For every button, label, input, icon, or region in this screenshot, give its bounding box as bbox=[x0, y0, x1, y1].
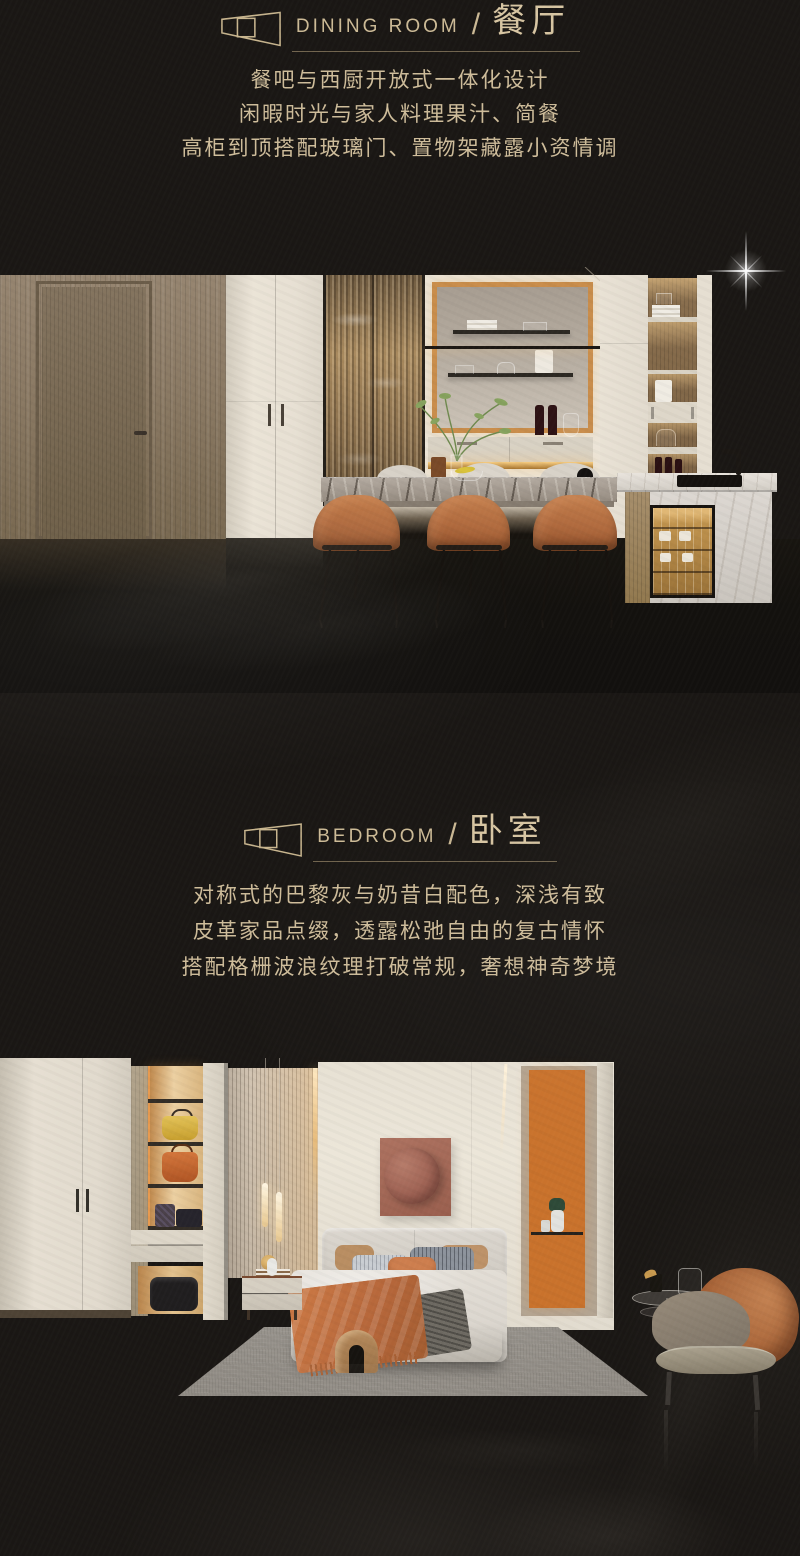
fluted-panel bbox=[228, 1068, 318, 1278]
duffel-bag bbox=[150, 1277, 198, 1311]
folded-clothes bbox=[176, 1209, 202, 1227]
canister bbox=[682, 553, 693, 562]
shelf-niche-glow bbox=[648, 322, 697, 370]
dining-description: 餐吧与西厨开放式一体化设计 闲暇时光与家人料理果汁、简餐 高柜到顶搭配玻璃门、置… bbox=[0, 64, 800, 166]
promo-page: DINING ROOM / 餐厅 餐吧与西厨开放式一体化设计 闲暇时光与家人料理… bbox=[0, 0, 800, 1556]
wine-glasses bbox=[656, 429, 676, 446]
floor-reflection bbox=[664, 1410, 668, 1474]
shelf-divider bbox=[648, 370, 697, 374]
nightstand-leg bbox=[247, 1310, 250, 1320]
purse bbox=[155, 1204, 175, 1227]
glass-shelf bbox=[531, 1232, 583, 1235]
led-light-slit bbox=[313, 1068, 317, 1198]
shelf-drawer-band bbox=[648, 402, 697, 423]
cream-panel bbox=[597, 1063, 613, 1318]
wine-bottle bbox=[675, 459, 682, 474]
chair-legs bbox=[300, 550, 630, 628]
bedroom-description: 对称式的巴黎灰与奶昔白配色，深浅有致 皮革家品点缀，透露松弛自由的复古情怀 搭配… bbox=[0, 878, 800, 986]
armchair-leg bbox=[665, 1372, 672, 1405]
canister bbox=[679, 531, 691, 541]
floor-reflection bbox=[0, 539, 226, 591]
dining-description-line: 餐吧与西厨开放式一体化设计 bbox=[0, 64, 800, 98]
handbag-orange bbox=[162, 1152, 198, 1182]
bedroom-description-line: 皮革家品点缀，透露松弛自由的复古情怀 bbox=[0, 914, 800, 950]
bedroom-description-line: 对称式的巴黎灰与奶昔白配色，深浅有致 bbox=[0, 878, 800, 914]
perspective-frame-logo-icon bbox=[220, 9, 282, 49]
floor-reflection bbox=[754, 1412, 758, 1470]
bedroom-photo bbox=[0, 1058, 800, 1418]
wardrobe bbox=[0, 1058, 131, 1318]
door-handle bbox=[134, 431, 147, 435]
dining-header-en: DINING ROOM bbox=[296, 16, 460, 38]
cabinet-seam bbox=[600, 343, 648, 344]
dining-header: DINING ROOM / 餐厅 bbox=[0, 6, 800, 52]
dining-header-zh: 餐厅 bbox=[492, 0, 570, 42]
niche-shelf bbox=[148, 1099, 203, 1103]
floor-reflection bbox=[340, 1420, 700, 1480]
nightstand-leg bbox=[294, 1310, 297, 1320]
wall-art-circle bbox=[384, 1148, 440, 1204]
glassware bbox=[656, 293, 672, 304]
wall-seam bbox=[471, 1062, 472, 1232]
pendant-light bbox=[262, 1183, 268, 1227]
bedroom-header-slash: / bbox=[448, 818, 456, 852]
bedroom-header-text: BEDROOM / 卧室 bbox=[313, 803, 557, 862]
wardrobe-plinth bbox=[0, 1310, 131, 1318]
dining-header-text: DINING ROOM / 餐厅 bbox=[292, 0, 580, 52]
white-sculpture bbox=[655, 380, 672, 402]
bedroom-description-line: 搭配格栅波浪纹理打破常规，奢想神奇梦境 bbox=[0, 950, 800, 986]
canister bbox=[659, 531, 671, 541]
bedroom-header-zh: 卧室 bbox=[469, 803, 547, 852]
dining-description-line: 闲暇时光与家人料理果汁、简餐 bbox=[0, 98, 800, 132]
pendant-light bbox=[276, 1192, 282, 1242]
niche-shelf bbox=[148, 1184, 203, 1188]
wine-bottle bbox=[665, 457, 672, 474]
dining-description-line: 高柜到顶搭配玻璃门、置物架藏露小资情调 bbox=[0, 132, 800, 166]
shelf-divider bbox=[648, 317, 697, 322]
dining-room-photo bbox=[0, 273, 800, 693]
faucet bbox=[721, 449, 741, 454]
shelf-band-handle bbox=[651, 407, 654, 419]
wardrobe-handles bbox=[76, 1189, 89, 1212]
wine-bottle bbox=[535, 405, 544, 435]
niche-drawers bbox=[131, 1230, 207, 1262]
floor-glow bbox=[420, 1466, 800, 1556]
niche-interior bbox=[534, 1075, 580, 1303]
door bbox=[42, 287, 146, 539]
small-jar bbox=[541, 1220, 550, 1232]
nightstand bbox=[242, 1276, 302, 1310]
handbag-yellow bbox=[162, 1116, 198, 1140]
armchair-seat-band bbox=[656, 1346, 776, 1374]
astronaut-figurine bbox=[267, 1258, 277, 1276]
perspective-frame-logo-icon bbox=[243, 821, 303, 859]
wine-display-cabinet bbox=[650, 505, 715, 598]
decanter bbox=[563, 413, 579, 437]
drawer-handle bbox=[543, 442, 563, 445]
figurine-body bbox=[551, 1210, 564, 1232]
cabinet-seam bbox=[226, 401, 323, 402]
shelf-band-handle bbox=[691, 407, 694, 419]
sparkle-flare-icon bbox=[700, 225, 792, 317]
armchair-leg bbox=[753, 1375, 760, 1410]
bedroom-header-en: BEDROOM bbox=[317, 826, 436, 848]
sink bbox=[677, 475, 742, 487]
wine-bottle bbox=[655, 457, 662, 474]
canister bbox=[660, 553, 671, 562]
bedroom-header: BEDROOM / 卧室 bbox=[0, 816, 800, 862]
shelf-divider bbox=[648, 447, 697, 454]
dining-header-slash: / bbox=[472, 8, 480, 42]
wine-bottle bbox=[548, 405, 557, 435]
wardrobe-divider bbox=[82, 1058, 83, 1318]
cabinet-handles bbox=[268, 404, 284, 426]
book-stack bbox=[652, 305, 680, 317]
pendant-cable bbox=[279, 1058, 280, 1193]
pendant-cable bbox=[265, 1058, 266, 1184]
floor-reflection bbox=[300, 1364, 500, 1390]
black-cup-decor bbox=[650, 1274, 662, 1292]
